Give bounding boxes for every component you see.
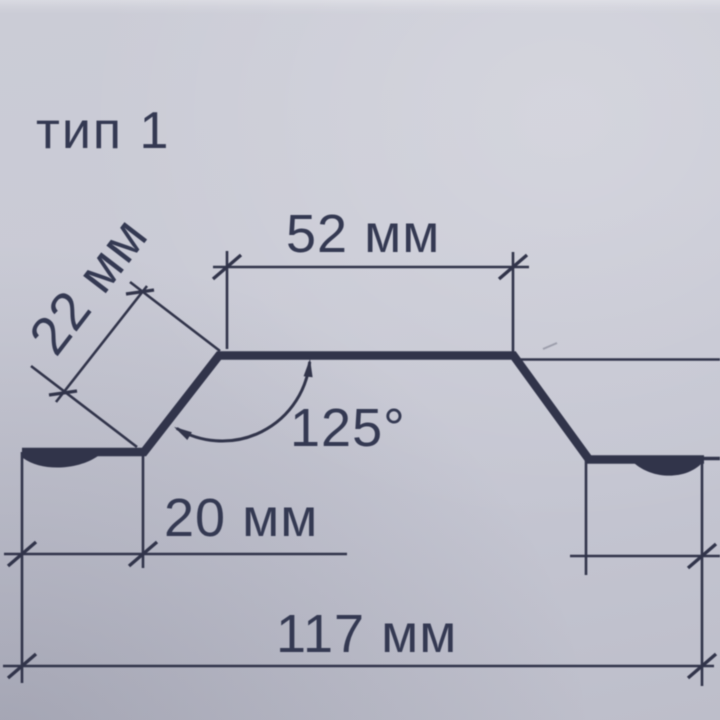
dim-top-width-label: 52 мм (286, 204, 440, 264)
dim-angle-label: 125° (290, 398, 406, 458)
dim-total-width-label: 117 мм (276, 604, 457, 664)
arc-arrowhead (174, 427, 192, 440)
arc-arrowhead (304, 359, 313, 377)
ext-line (31, 366, 137, 447)
drawing-title: тип 1 (36, 102, 170, 160)
dimension-total-width: 117 мм (3, 604, 716, 678)
drawing-photo: 52 мм 22 мм 125° 20 мм (0, 0, 720, 720)
tick-arrow (126, 290, 154, 294)
dimension-right-flange (570, 460, 720, 686)
photo-smudge (543, 343, 557, 349)
dim-side-length-label: 22 мм (18, 207, 160, 366)
dim-flange-width-label: 20 мм (164, 488, 318, 548)
dimension-top-width: 52 мм (213, 204, 529, 356)
drawing-canvas: 52 мм 22 мм 125° 20 мм (0, 0, 720, 720)
right-cut-edge-blob (633, 456, 702, 476)
left-cut-edge-blob (23, 450, 98, 468)
tick-arrow (49, 391, 77, 395)
dimension-side-length: 22 мм (18, 207, 220, 447)
